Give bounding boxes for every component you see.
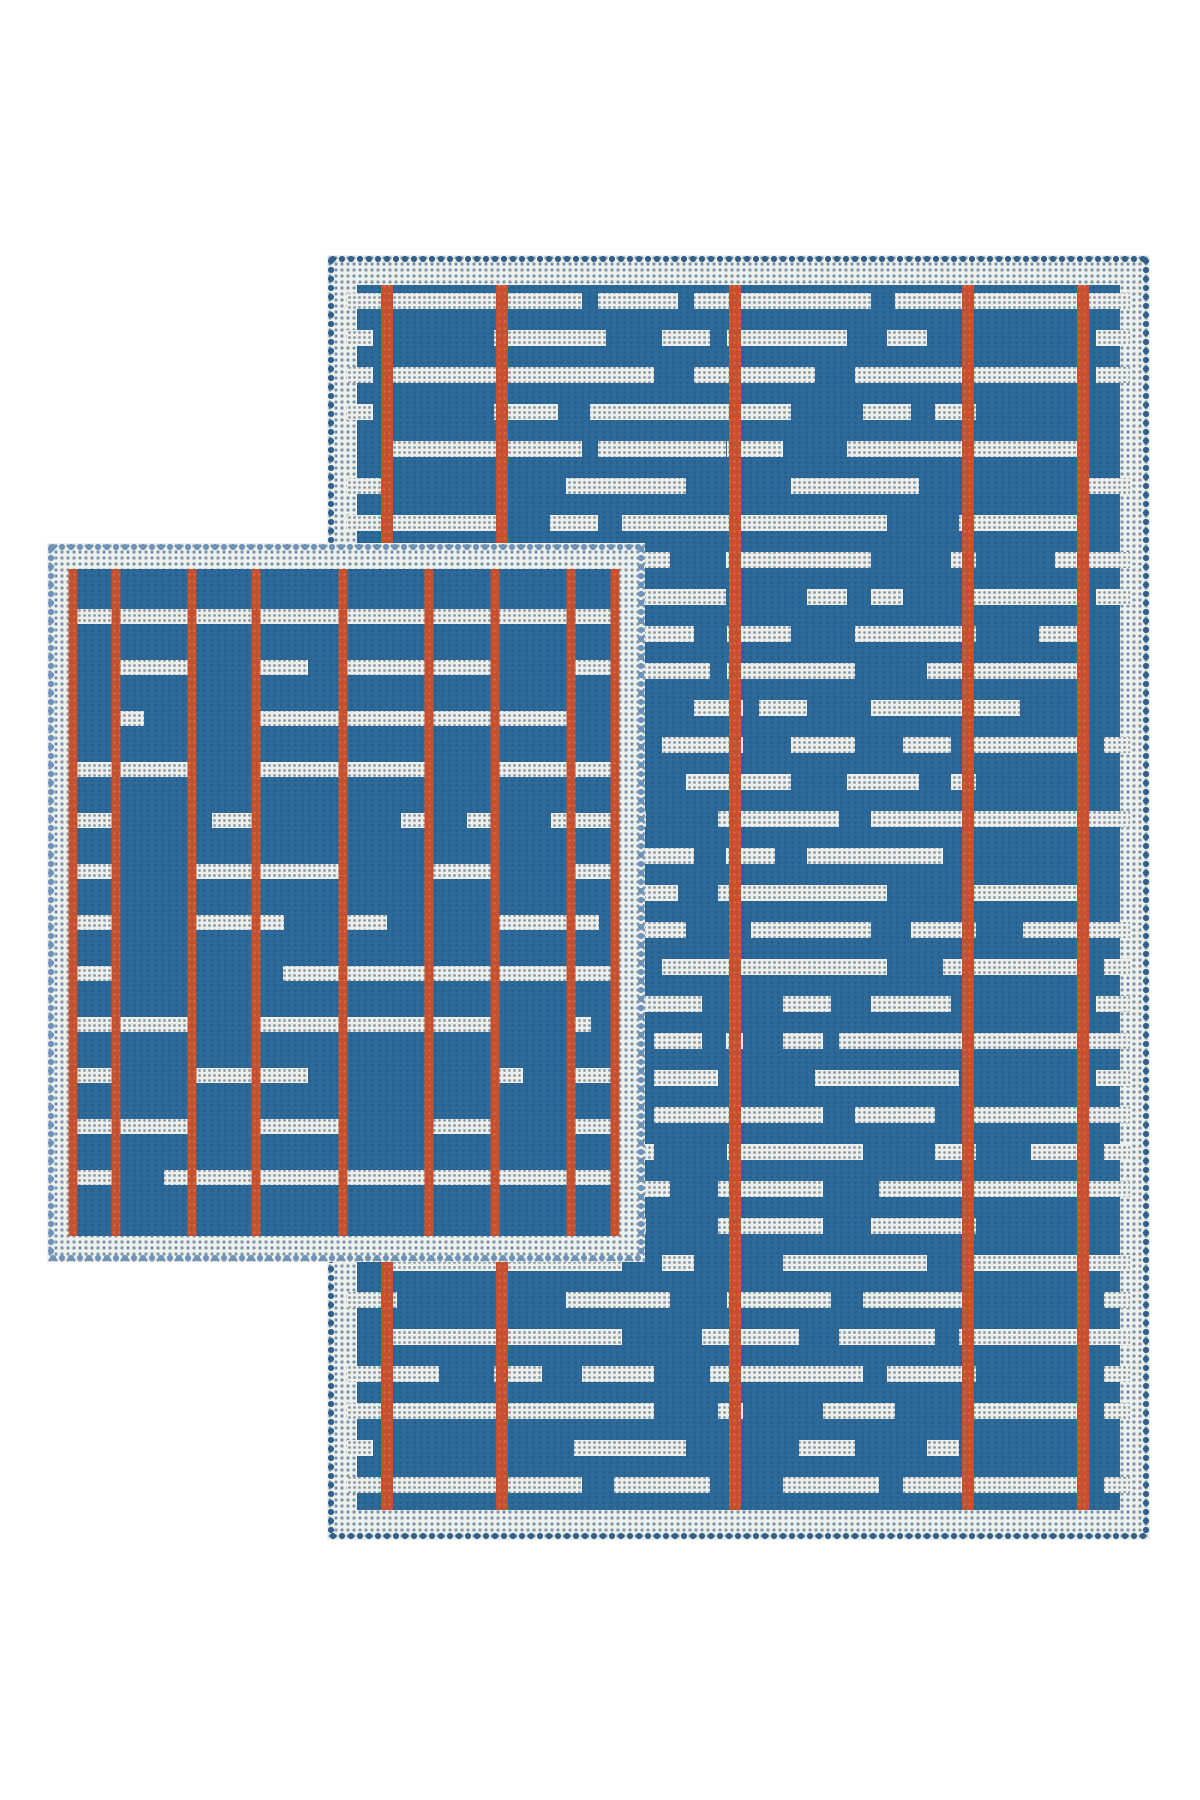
- rug-small-weave-svg: [47, 543, 645, 1262]
- product-photo: [0, 0, 1200, 1800]
- rug-small: [47, 543, 645, 1262]
